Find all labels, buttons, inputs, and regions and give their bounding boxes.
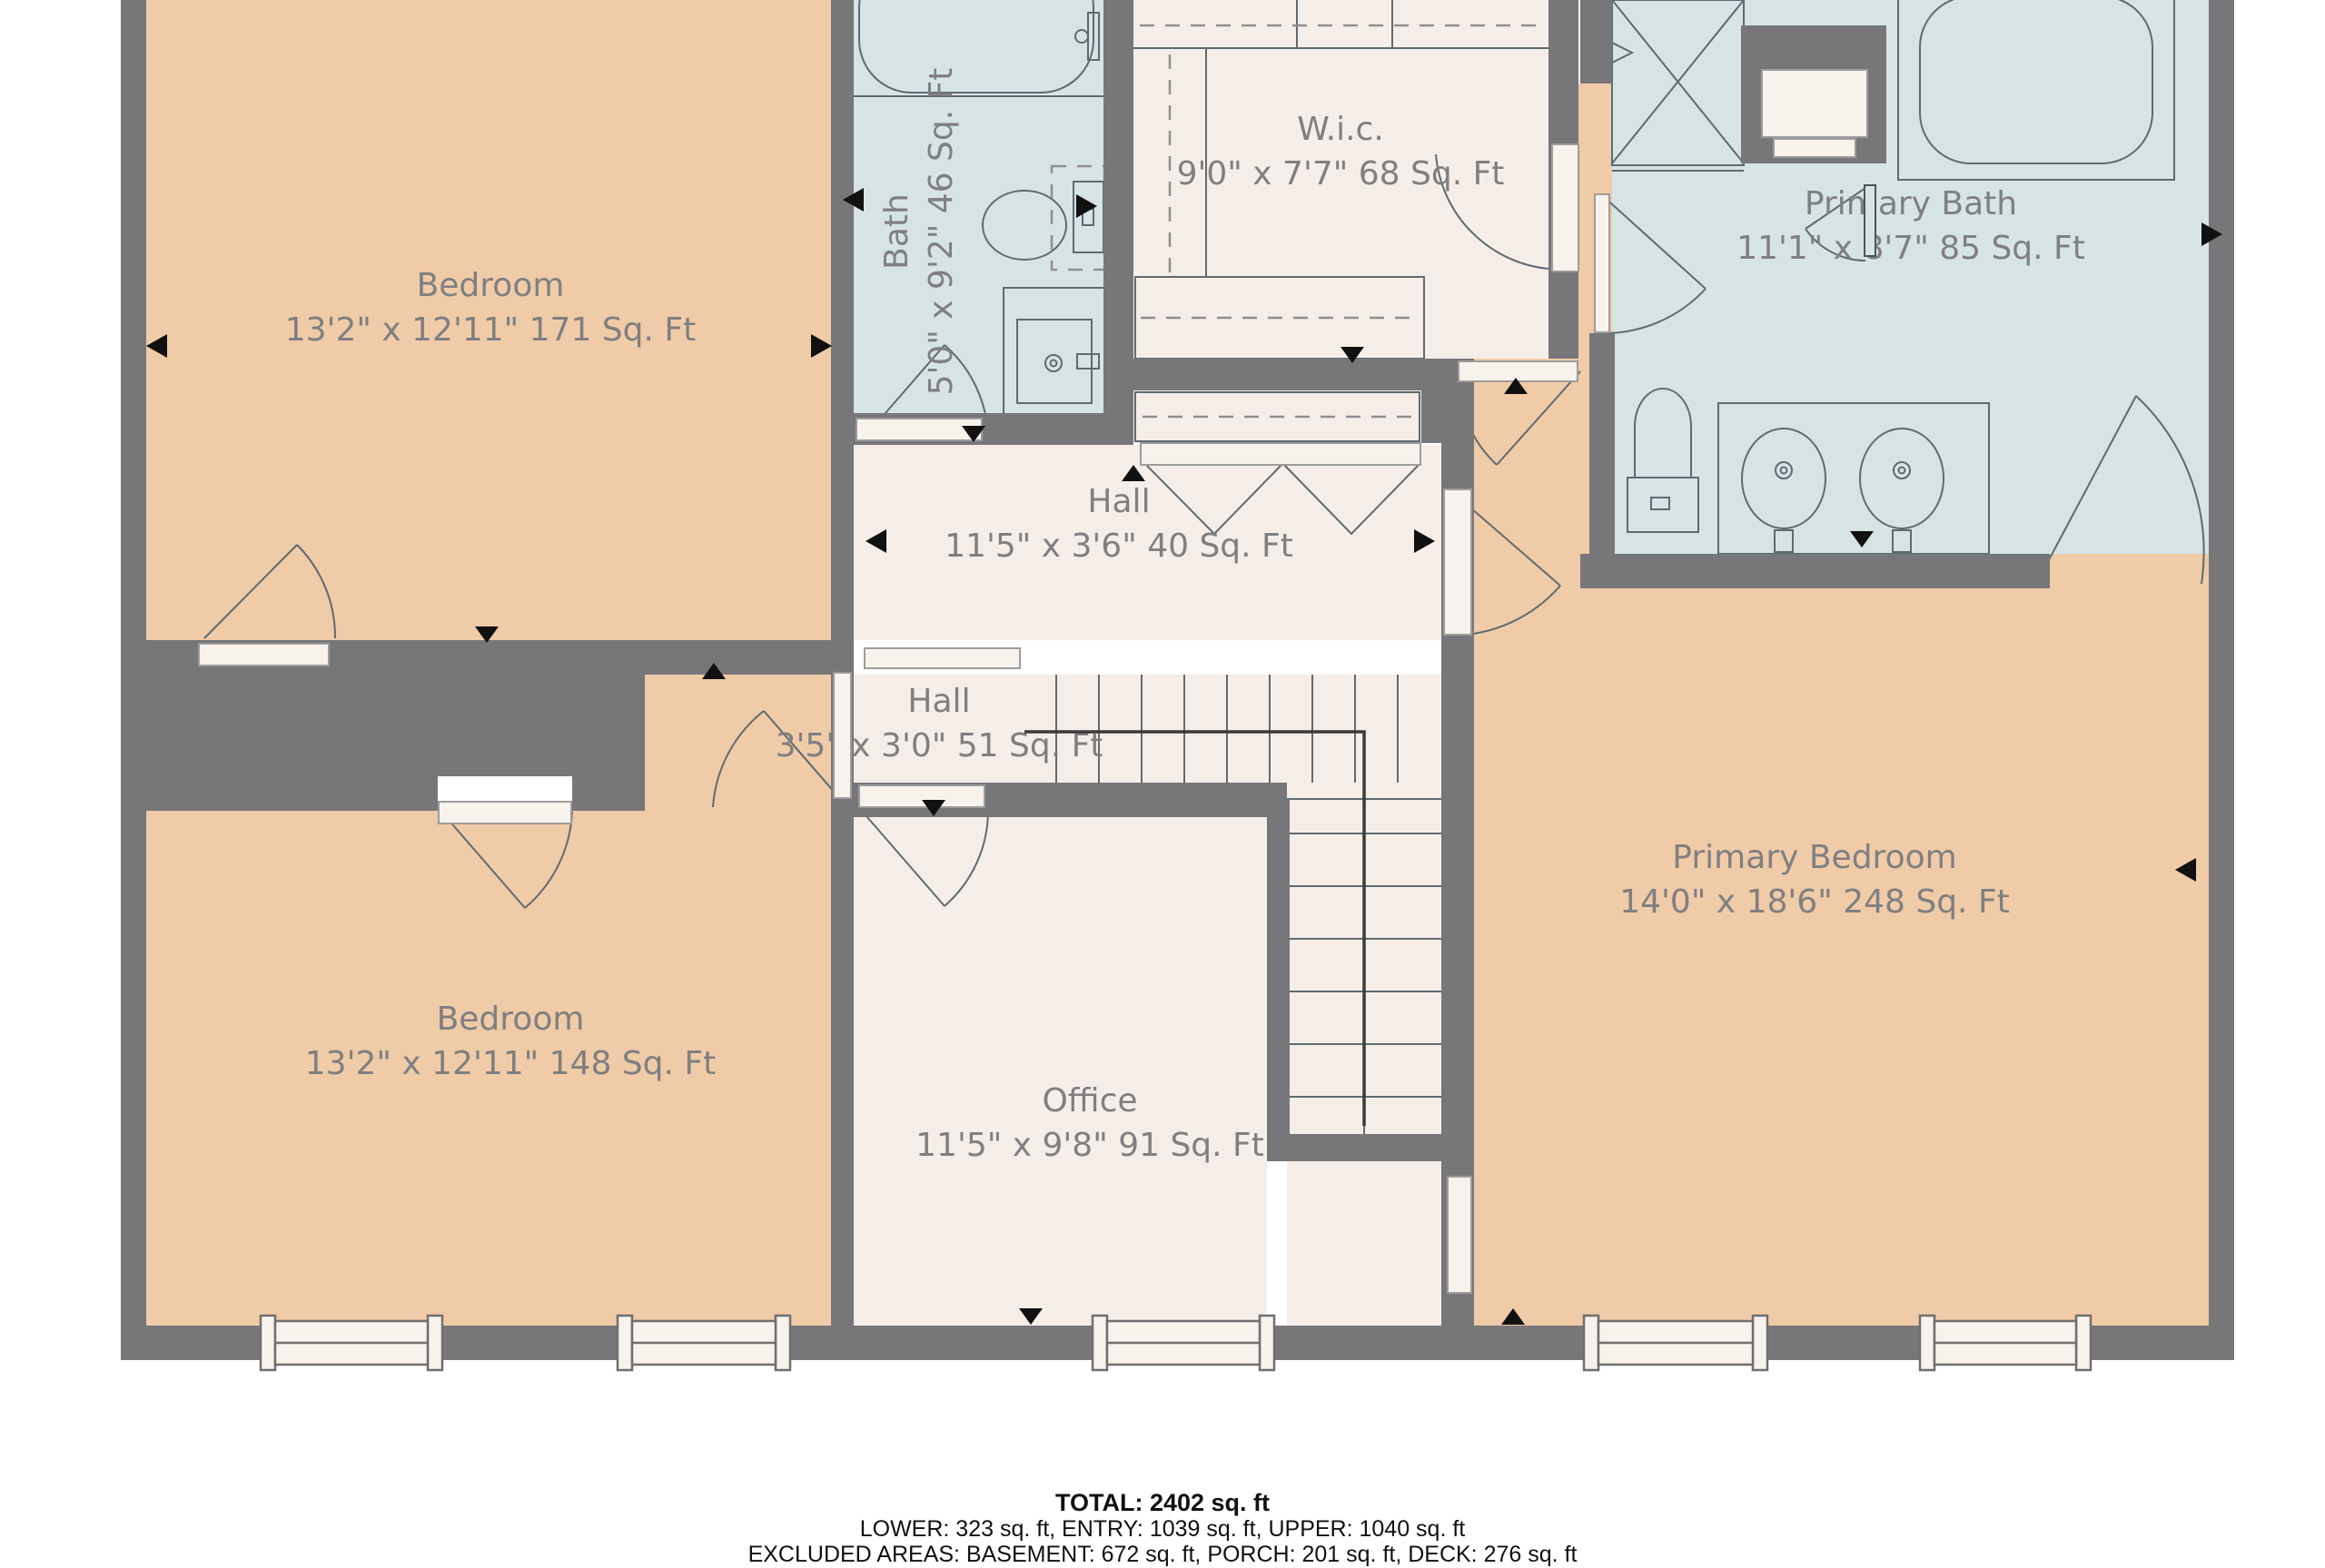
level-areas: LOWER: 323 sq. ft, ENTRY: 1039 sq. ft, U… <box>0 1516 2325 1543</box>
wall-markers <box>146 188 2222 1325</box>
windows <box>261 1316 2091 1370</box>
overlay-layer <box>0 0 2325 1550</box>
stair-railing <box>1024 732 1364 1126</box>
total-area: TOTAL: 2402 sq. ft <box>0 1489 2325 1517</box>
excluded-areas: EXCLUDED AREAS: BASEMENT: 672 sq. ft, PO… <box>0 1542 2325 1568</box>
floor-plan: Bedroom 13'2" x 12'11" 171 Sq. Ft Bath 5… <box>0 0 2325 1550</box>
